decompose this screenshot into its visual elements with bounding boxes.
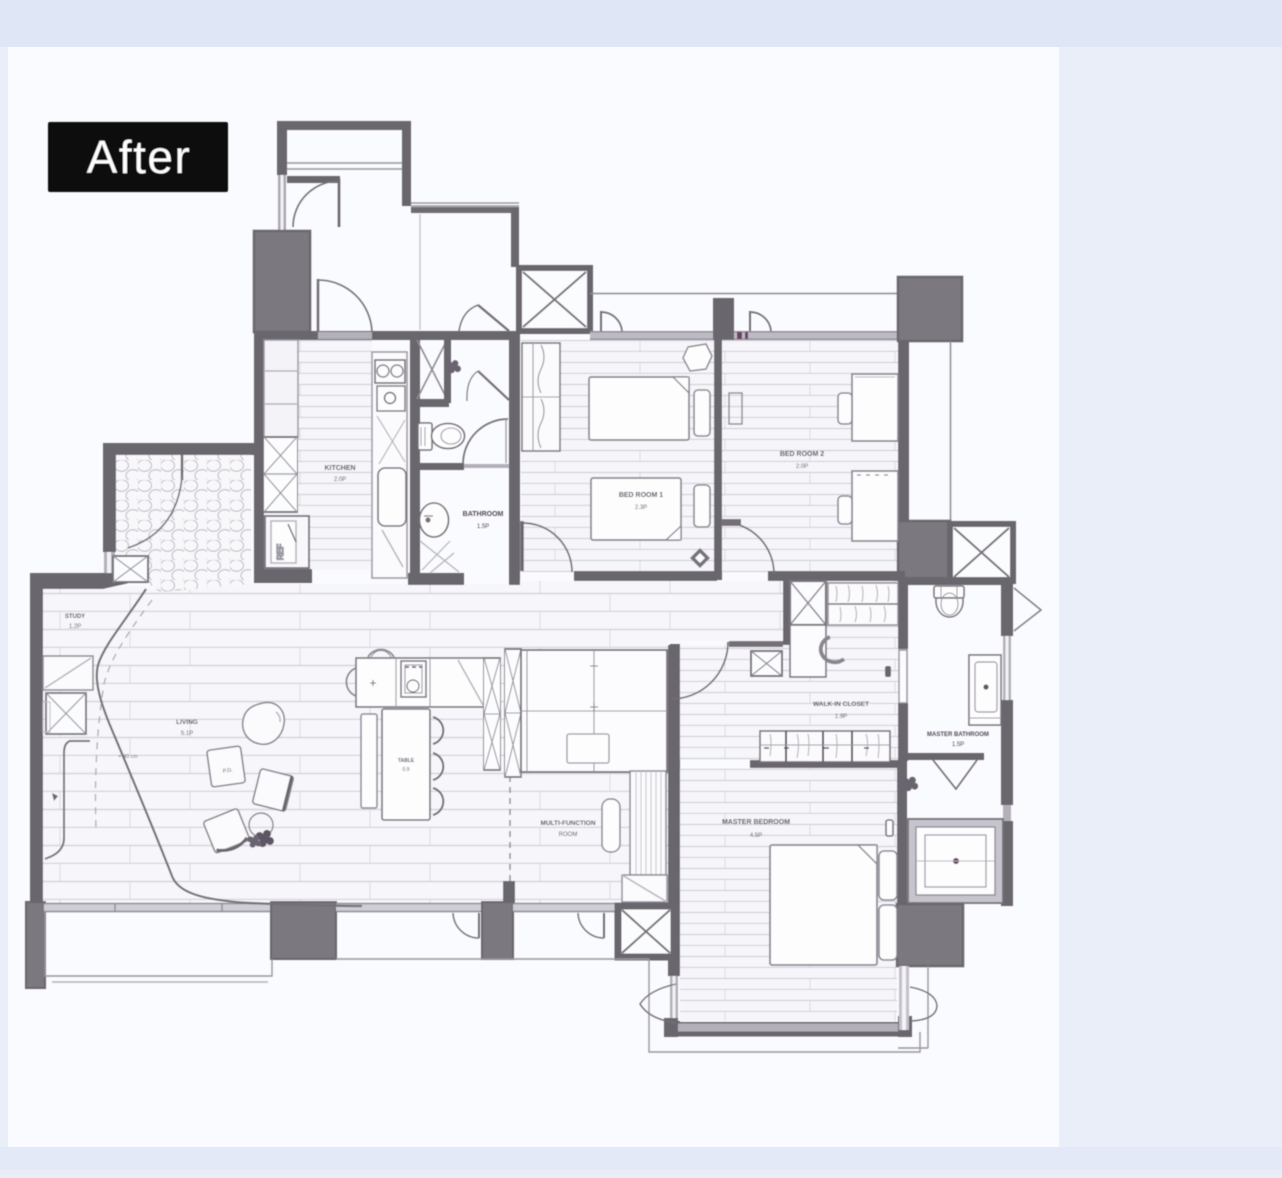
svg-text:MULTI-FUNCTION: MULTI-FUNCTION [540,820,595,827]
svg-text:LIVING: LIVING [176,719,198,726]
svg-text:1.9P: 1.9P [835,714,847,720]
svg-text:After: After [87,131,192,183]
svg-text:4.5P: 4.5P [750,833,762,839]
svg-text:+ 40 cm: + 40 cm [118,754,138,760]
svg-text:MASTER BATHROOM: MASTER BATHROOM [927,732,989,738]
svg-text:KITCHEN: KITCHEN [324,465,355,472]
svg-text:STUDY: STUDY [65,614,85,620]
svg-text:ROOM: ROOM [559,832,578,838]
svg-text:1.2P: 1.2P [69,624,81,630]
svg-text:2.3P: 2.3P [635,505,647,511]
svg-text:0.9: 0.9 [403,767,410,773]
svg-text:1.5P: 1.5P [952,742,964,748]
svg-text:TABLE: TABLE [398,758,415,764]
svg-text:WALK-IN CLOSET: WALK-IN CLOSET [813,701,869,708]
svg-text:2.0P: 2.0P [796,464,808,470]
svg-text:REF: REF [276,544,285,560]
svg-text:BATHROOM: BATHROOM [463,511,504,518]
svg-text:2.0P: 2.0P [334,477,346,483]
svg-text:BED ROOM 2: BED ROOM 2 [780,451,824,458]
svg-text:MASTER BEDROOM: MASTER BEDROOM [722,819,790,826]
svg-text:BED ROOM 1: BED ROOM 1 [619,492,663,499]
svg-text:1.5P: 1.5P [477,524,489,530]
svg-text:5.1P: 5.1P [181,731,193,737]
